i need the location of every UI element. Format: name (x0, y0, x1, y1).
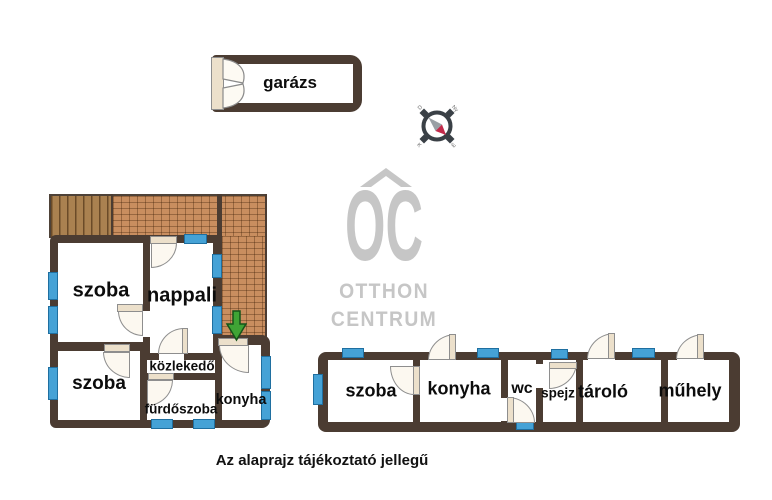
compass-icon: D Ny K É (415, 104, 459, 148)
door-leaf (507, 397, 514, 423)
door-leaf (182, 328, 188, 354)
door-leaf (697, 334, 704, 359)
room-label: tároló (578, 382, 628, 403)
door-leaf (148, 373, 174, 380)
room-label: szoba (345, 381, 396, 402)
terrace-divider-line (111, 194, 113, 236)
terrace-wall-line (217, 194, 222, 236)
garage-door-icon (222, 57, 254, 110)
room-label: közlekedő (149, 359, 214, 374)
window (48, 272, 58, 300)
room-label: konyha (216, 392, 267, 408)
window (342, 348, 364, 358)
compass-letter-se: É (450, 141, 458, 148)
door-leaf (608, 333, 615, 359)
room-label: fürdőszoba (145, 402, 218, 417)
room-label: szoba (73, 280, 130, 303)
door-leaf (150, 236, 177, 244)
door-leaf (413, 366, 420, 395)
terrace-wood-deck (49, 194, 115, 238)
disclaimer-caption: Az alaprajz tájékoztató jellegű (0, 452, 644, 469)
room-label: nappali (147, 285, 217, 308)
window (212, 254, 222, 278)
window (48, 306, 58, 334)
window (212, 306, 222, 334)
room-label: műhely (658, 381, 721, 402)
window (193, 419, 215, 429)
entrance-arrow-icon (225, 310, 247, 342)
room-label: konyha (427, 379, 490, 400)
window (261, 356, 271, 389)
logo-initials: OC (309, 186, 459, 266)
room-label: spejz (541, 386, 575, 401)
window (184, 234, 207, 244)
window (632, 348, 655, 358)
window (313, 374, 323, 405)
room-label: wc (511, 380, 532, 398)
terrace-brick-top (113, 194, 266, 238)
compass-letter-sw: K (415, 142, 422, 148)
door-leaf (549, 362, 577, 369)
room-label-garage: garázs (263, 73, 317, 93)
door-leaf (104, 344, 130, 352)
logo-line2: CENTRUM (331, 308, 437, 332)
room-label: szoba (72, 373, 126, 395)
window (48, 367, 58, 400)
door-opening (143, 311, 150, 337)
logo-line1: OTTHON (339, 280, 429, 304)
door-leaf (117, 304, 143, 312)
window (477, 348, 499, 358)
terrace-edge-line (265, 194, 267, 337)
door-leaf (449, 334, 456, 360)
floor-plan-canvas: garázs D Ny K É OC OTTHON CENTRUM (0, 0, 772, 500)
window (151, 419, 173, 429)
window (551, 349, 568, 359)
door-opening (536, 364, 543, 388)
